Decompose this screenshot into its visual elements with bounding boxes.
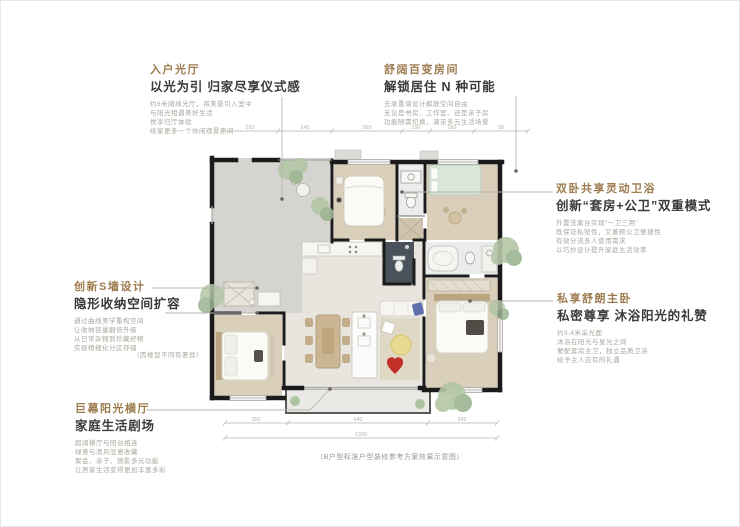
toilet-icon: [395, 261, 403, 272]
pillow: [439, 303, 461, 312]
throw-blanket: [466, 320, 484, 335]
faucet-icon: [362, 314, 365, 317]
annotation-subtitle: 解锁居住 N 种可能: [384, 80, 495, 95]
pillow: [225, 357, 237, 376]
annotation-line: 沐浴在阳光与星光之间: [557, 338, 708, 347]
annotation-line: 约3.4米采光面: [557, 329, 708, 338]
shower-icon: [405, 245, 409, 249]
left-bedroom: [216, 332, 274, 380]
svg-text:640: 640: [353, 417, 362, 423]
svg-text:345: 345: [457, 417, 466, 423]
headboard: [434, 294, 490, 301]
fridge-icon: [302, 258, 317, 274]
annotation-sun-hall: 巨幕阳光横厅 家庭生活剧场 超阔横厅与阳台相连 绿意与清风恣意收藏 聚会、亲子、…: [75, 403, 166, 475]
annotation-subtitle: 家庭生活剧场: [75, 419, 166, 434]
annotation-flex-room: 舒阔百变房间 解锁居住 N 种可能 去承重墙设计解放空间自由 无论是书房、工作室…: [384, 64, 495, 127]
annotation-line: 通过曲线美学重构空间: [74, 317, 180, 326]
bathtub-icon: [428, 246, 458, 271]
annotation-line: 去承重墙设计解放空间自由: [384, 100, 495, 109]
annotation-line: 与阳光相遇美好生活: [150, 109, 301, 118]
plant-icon: [337, 198, 342, 203]
kitchen-counter: [302, 242, 382, 256]
headboard: [216, 332, 222, 380]
plan-caption: （B户型标准户型装修参考方案效果示意图）: [262, 452, 518, 462]
annotation-line: 绿意与清风恣意收藏: [75, 448, 166, 457]
dimension-bottom-values: 355 640 345 1390: [251, 417, 466, 438]
annotation-title: 入户光厅: [150, 64, 301, 77]
annotation-line: 奢配套房主卫，独立品质卫浴: [557, 347, 708, 356]
annotation-s-wall: 创新S墙设计 隐形收纳空间扩容 通过曲线美学重构空间 让收纳容量翻倍升级 从日常…: [74, 281, 180, 353]
dining-set: [305, 315, 350, 368]
wardrobe: [428, 280, 490, 291]
annotation-title: 双卧共享灵动卫浴: [556, 183, 711, 196]
annotation-subtitle: 以光为引 归家尽享仪式感: [150, 80, 301, 95]
entry-stool: [249, 299, 255, 305]
table-runner: [322, 328, 334, 354]
annotation-line: 悦享归厅体验: [150, 118, 301, 127]
living-zone: [380, 301, 424, 380]
yellow-pouf: [391, 335, 411, 355]
planter: [290, 396, 300, 406]
entry-cabinet: [258, 292, 280, 306]
svg-text:88: 88: [498, 125, 504, 131]
pouf: [426, 353, 436, 363]
annotation-line: 以巧妙设计提升家庭生活效率: [556, 246, 711, 255]
patio-table: [297, 184, 310, 197]
bed-bench: [270, 336, 274, 376]
annotation-line: 约6米阔绰光厅，将美景引入室中: [150, 100, 301, 109]
annotation-title: 创新S墙设计: [74, 281, 180, 294]
planter: [415, 399, 425, 409]
annotation-subtitle: 创新“套房+公卫”双重模式: [556, 199, 711, 214]
annotation-line: 超阔横厅与阳台相连: [75, 439, 166, 448]
annotation-shared-bath: 双卧共享灵动卫浴 创新“套房+公卫”双重模式 外置洗漱台实现“一卫三用” 既保证…: [556, 183, 711, 255]
annotation-line: 给家更多一个休闲观景空间: [150, 127, 301, 136]
annotation-line: 有效分流多人使用需求: [556, 237, 711, 246]
floor-plan-infographic: 283 245 365 190 283 88 355 640 345 1390 …: [0, 0, 740, 527]
pillow: [225, 335, 237, 354]
sink-icon: [408, 174, 414, 180]
svg-text:365: 365: [362, 125, 371, 131]
annotation-line: 让收纳容量翻倍升级: [74, 326, 180, 335]
annotation-line: 无论是书房、工作室、还是亲子房: [384, 109, 495, 118]
svg-text:245: 245: [300, 125, 309, 131]
toilet-icon: [466, 252, 475, 264]
annotation-subtitle: 隐形收纳空间扩容: [74, 297, 180, 312]
svg-text:355: 355: [251, 417, 260, 423]
annotation-line: 既保证私密性，又兼顾公卫便捷性: [556, 228, 711, 237]
annotation-line: 聚会、亲子、观影多元功能: [75, 457, 166, 466]
toilet-tank: [405, 193, 417, 198]
annotation-subtitle: 私密尊享 沐浴阳光的礼赞: [557, 309, 708, 324]
annotation-line: 从日常杂物到珍藏好物: [74, 335, 180, 344]
annotation-title: 私享舒朗主卧: [557, 293, 708, 306]
island-counter: [352, 312, 377, 378]
small-table: [449, 212, 461, 224]
pillow: [463, 303, 485, 312]
nightstand: [336, 177, 343, 184]
annotation-line: 功能随需切换，满足多元生活场景: [384, 118, 495, 127]
s-wall-note: （因楼型不同有差异）: [133, 349, 203, 359]
annotation-master-bedroom: 私享舒朗主卧 私密尊享 沐浴阳光的礼赞 约3.4米采光面 沐浴在阳光与星光之间 …: [557, 293, 708, 365]
annotation-entry-hall: 入户光厅 以光为引 归家尽享仪式感 约6米阔绰光厅，将美景引入室中 与阳光相遇美…: [150, 64, 301, 136]
annotation-line: 给予主人应有的礼遇: [557, 356, 708, 365]
svg-text:1390: 1390: [355, 432, 367, 438]
chair-icon: [443, 207, 449, 213]
bed-icon: [344, 176, 384, 226]
annotation-line: 外置洗漱台实现“一卫三用”: [556, 219, 711, 228]
annotation-title: 巨幕阳光横厅: [75, 403, 166, 416]
annotation-title: 舒阔百变房间: [384, 64, 495, 77]
annotation-line: 让居家生活变得更加丰富多彩: [75, 466, 166, 475]
chair-icon: [461, 208, 467, 214]
faucet-icon: [362, 332, 365, 335]
throw-blanket: [254, 350, 263, 362]
